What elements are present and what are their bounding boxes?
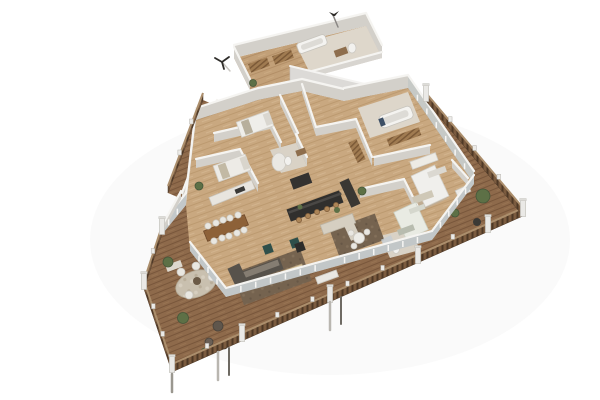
- terrace-pouf-a: [213, 321, 223, 331]
- railing-pillar: [415, 247, 420, 264]
- terrace-railing-cap: [152, 304, 156, 309]
- dining-chairs-lower-seat: [219, 235, 225, 241]
- terrace-lounge-chairs-seat: [185, 291, 193, 299]
- terrace-railing-cap: [276, 312, 280, 317]
- terrace-railing-cap: [205, 343, 209, 348]
- terrace-lounge-chairs-seat: [177, 268, 185, 276]
- terrace-railing-cap: [311, 297, 315, 302]
- floorplan-scene: [0, 0, 600, 400]
- bar-stools-seat: [333, 202, 338, 207]
- left-balcony-railing-cap: [178, 150, 182, 155]
- floorplan-3d-render: [0, 0, 600, 400]
- railing-pillar-cap: [485, 215, 491, 217]
- dining-chairs-lower-seat: [234, 230, 240, 236]
- weathervane-bird-icon: [329, 11, 339, 16]
- dining-chairs-upper-seat: [235, 212, 241, 218]
- terrace-railing-cap: [448, 117, 452, 122]
- terrace-railing-cap: [381, 265, 385, 270]
- terrace-plant-a: [163, 257, 173, 267]
- terrace-railing-cap: [161, 331, 165, 336]
- railing-pillar: [520, 200, 525, 217]
- dining-chairs-lower-seat: [241, 227, 247, 233]
- railing-pillar: [141, 273, 146, 290]
- bar-stools-seat: [314, 209, 319, 214]
- shower-upper: [272, 153, 286, 171]
- railing-pillar: [159, 218, 164, 235]
- interior-plant-east: [358, 187, 366, 195]
- terrace-railing-cap: [346, 281, 350, 286]
- railing-pillar: [239, 325, 244, 342]
- kitchen-plant: [195, 182, 203, 190]
- railing-pillar: [327, 286, 332, 303]
- left-balcony-railing-cap: [190, 119, 194, 124]
- railing-pillar-cap: [159, 217, 165, 219]
- bar-stools-seat: [305, 213, 310, 218]
- balcony-tree: [476, 189, 490, 203]
- terrace-railing-cap: [473, 146, 477, 151]
- bar-stools-seat: [296, 217, 301, 222]
- dining-chairs-lower-seat: [211, 238, 217, 244]
- railing-pillar: [423, 85, 428, 102]
- terrace-lounge-chairs-seat: [192, 262, 200, 270]
- family-chairs-seat: [351, 243, 357, 249]
- terrace-plant-b: [178, 313, 189, 324]
- terrace-railing-cap: [497, 174, 501, 179]
- railing-pillar-cap: [423, 84, 429, 86]
- terrace-side-table: [193, 277, 201, 285]
- dining-chairs-upper-seat: [205, 223, 211, 229]
- railing-pillar: [169, 356, 174, 373]
- terrace-railing-cap: [151, 249, 155, 254]
- entry-plant: [250, 80, 257, 87]
- railing-pillar-cap: [327, 285, 333, 287]
- wing-toilet: [348, 43, 356, 53]
- dining-chairs-lower-seat: [226, 233, 232, 239]
- railing-pillar: [485, 216, 490, 233]
- family-plant: [334, 207, 340, 213]
- dining-chairs-upper-seat: [227, 215, 233, 221]
- railing-pillar-cap: [169, 355, 175, 357]
- terrace-railing-cap: [451, 234, 455, 239]
- family-chairs-seat: [364, 229, 370, 235]
- fan-blade-a: [215, 58, 222, 62]
- dining-chairs-upper-seat: [213, 220, 219, 226]
- railing-pillar-cap: [415, 246, 421, 248]
- railing-pillar-cap: [141, 272, 147, 274]
- railing-pillar-cap: [239, 324, 245, 326]
- railing-pillar-cap: [520, 199, 526, 201]
- dining-chairs-upper-seat: [220, 217, 226, 223]
- island-plant: [298, 205, 303, 210]
- bar-stools-seat: [324, 206, 329, 211]
- family-chairs-seat: [348, 230, 354, 236]
- family-round-table: [354, 233, 365, 244]
- toilet-center: [285, 157, 292, 166]
- fan-blade-b: [222, 57, 229, 62]
- balcony-firepit: [473, 218, 481, 226]
